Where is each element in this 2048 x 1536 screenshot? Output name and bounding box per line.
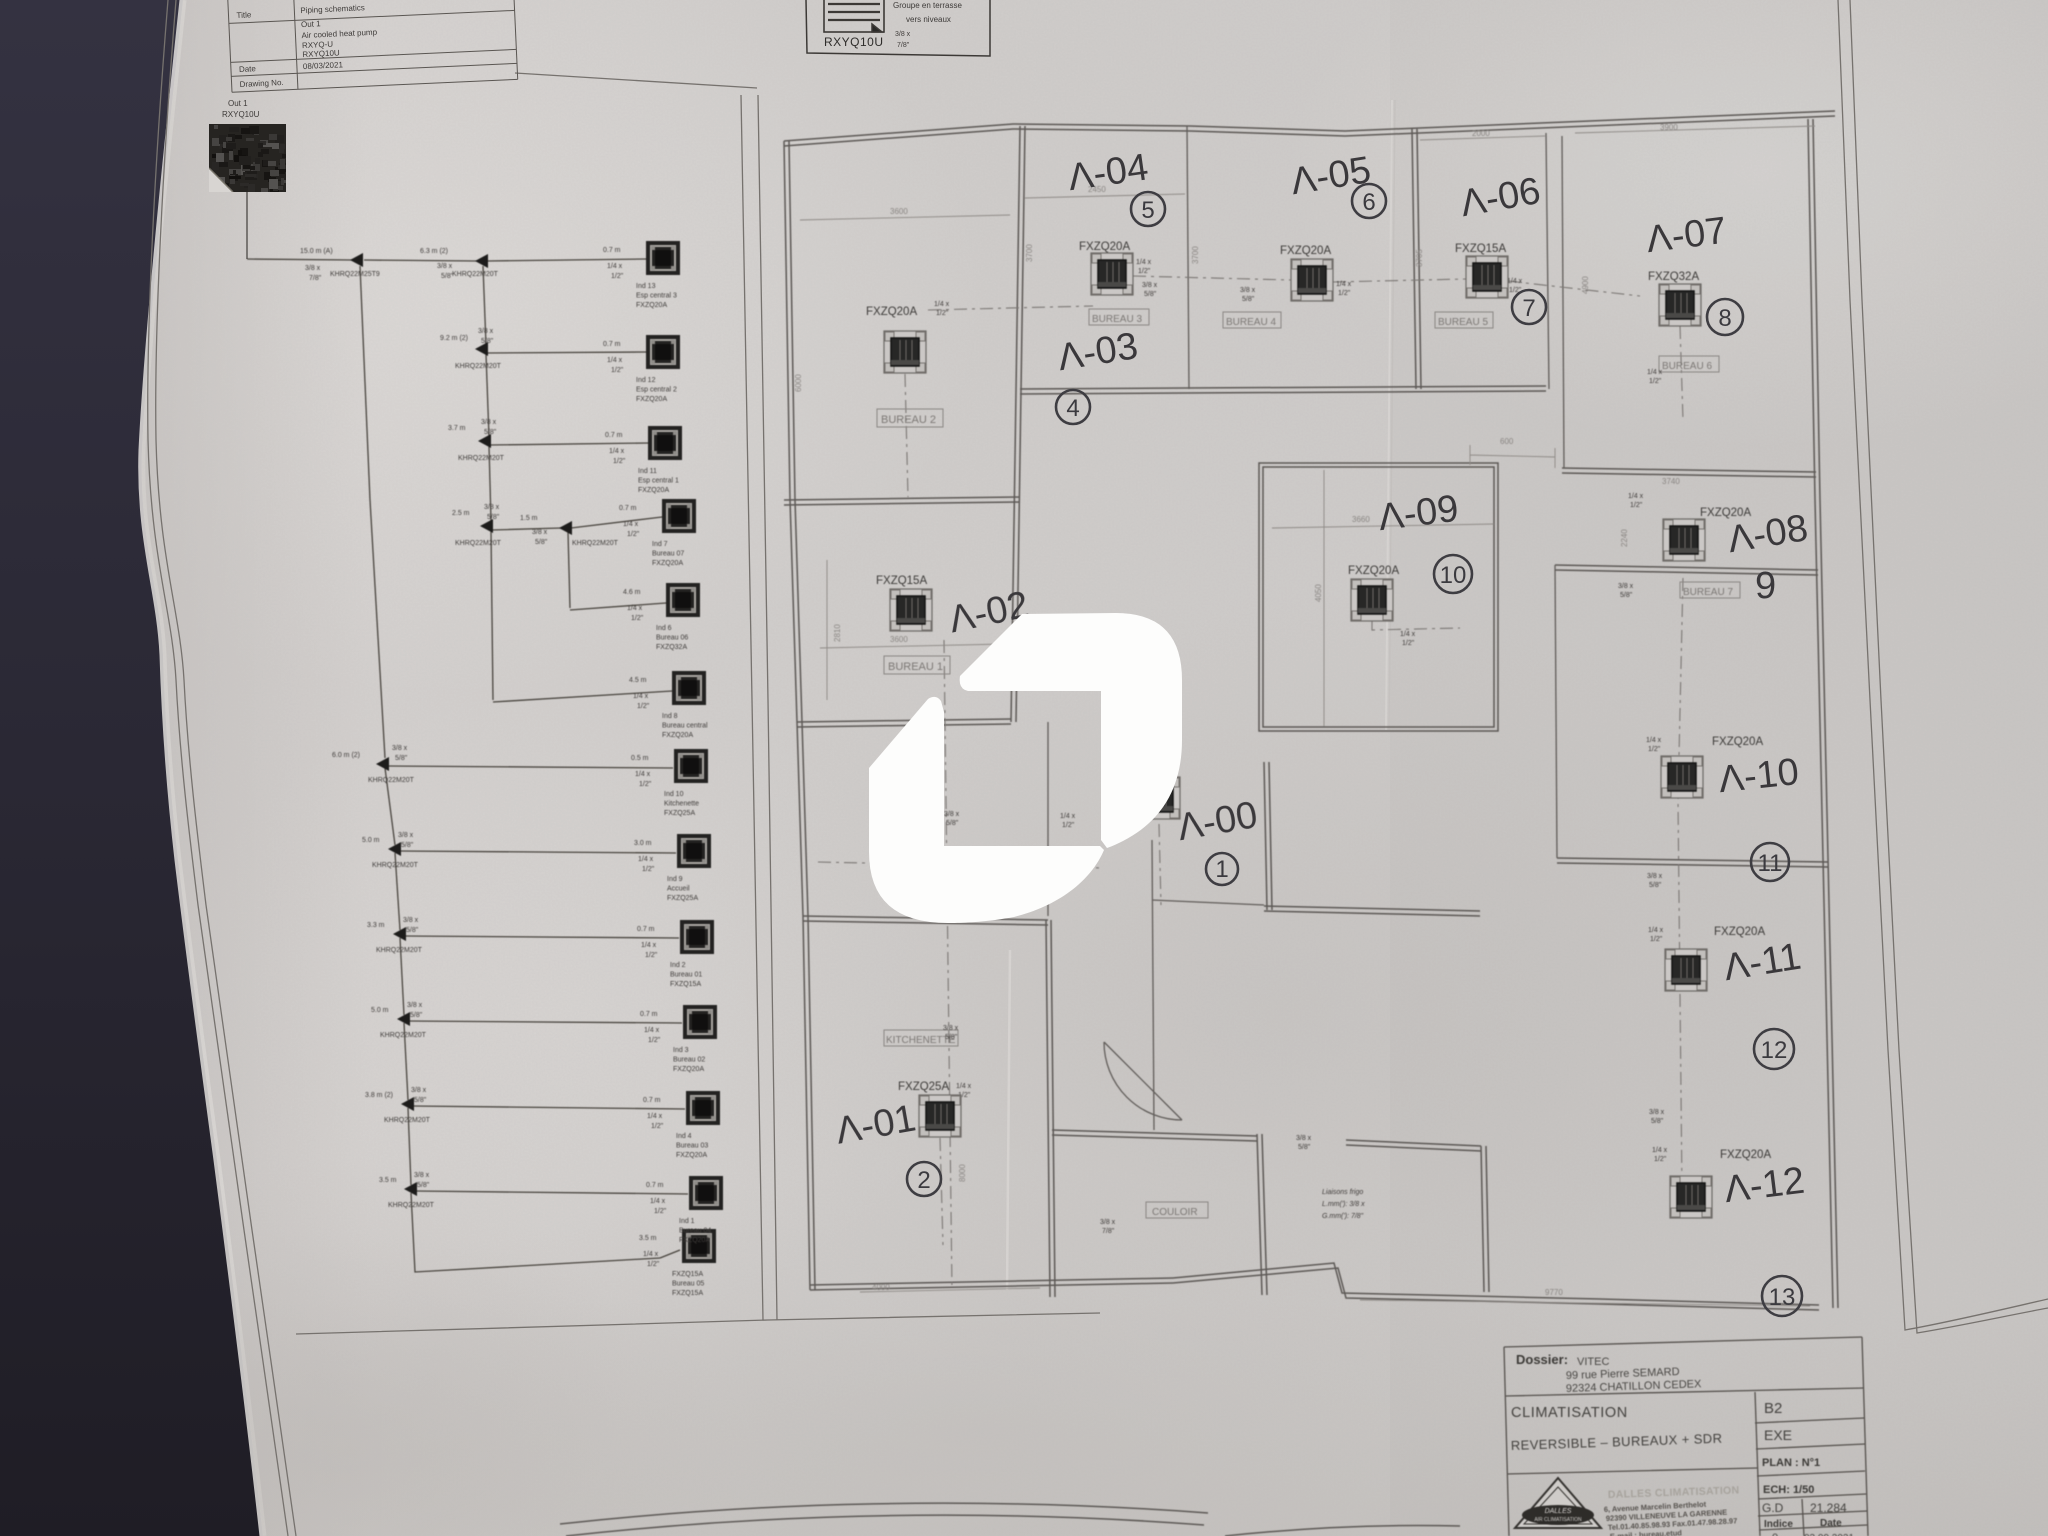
svg-text:4.5 m: 4.5 m [629, 677, 647, 684]
svg-text:AIR CLIMATISATION: AIR CLIMATISATION [1534, 1517, 1582, 1523]
svg-text:5/8": 5/8" [410, 1012, 423, 1019]
svg-text:FXZQ32A: FXZQ32A [656, 644, 687, 651]
svg-text:1/4 x: 1/4 x [650, 1198, 666, 1205]
svg-text:7/8": 7/8" [309, 275, 322, 282]
svg-text:4.6 m: 4.6 m [623, 589, 641, 596]
svg-text:KHRQ22M20T: KHRQ22M20T [388, 1202, 435, 1209]
svg-text:3/8 x: 3/8 x [532, 529, 548, 536]
svg-text:5/8": 5/8" [946, 820, 959, 827]
svg-text:5/8": 5/8" [535, 539, 548, 546]
svg-text:1/4 x: 1/4 x [627, 605, 643, 612]
svg-text:1/2": 1/2" [631, 615, 644, 622]
svg-text:1/2": 1/2" [654, 1208, 667, 1215]
svg-text:FXZQ15A: FXZQ15A [672, 1290, 703, 1297]
svg-text:1/4 x: 1/4 x [644, 1027, 660, 1034]
svg-text:1/4 x: 1/4 x [1647, 369, 1663, 376]
svg-text:KHRQ22M20T: KHRQ22M20T [458, 455, 505, 462]
svg-text:FXZQ20A: FXZQ20A [638, 487, 669, 494]
svg-text:3600: 3600 [890, 635, 908, 644]
svg-text:3/8 x: 3/8 x [481, 419, 497, 426]
svg-text:FXZQ15A: FXZQ15A [672, 1271, 703, 1278]
svg-text:2000: 2000 [1472, 129, 1490, 138]
svg-text:1/2": 1/2" [1654, 1156, 1667, 1163]
svg-text:1/2": 1/2" [647, 1261, 660, 1268]
svg-text:8: 8 [1718, 305, 1731, 332]
svg-text:1/4 x: 1/4 x [623, 521, 639, 528]
svg-text:5/8": 5/8" [487, 514, 500, 521]
svg-text:1/4 x: 1/4 x [934, 301, 950, 308]
svg-text:Bureau 04: Bureau 04 [679, 1228, 711, 1235]
svg-text:1/2": 1/2" [1402, 640, 1415, 647]
svg-text:Ind 6: Ind 6 [656, 625, 672, 632]
svg-text:2.5 m: 2.5 m [452, 510, 470, 517]
svg-text:3.8 m (2): 3.8 m (2) [365, 1092, 393, 1099]
svg-text:5/8": 5/8" [417, 1182, 430, 1189]
svg-text:3/8 x: 3/8 x [1142, 282, 1158, 289]
svg-text:3/8 x: 3/8 x [484, 504, 500, 511]
svg-text:1/4 x: 1/4 x [607, 357, 623, 364]
svg-text:0.7 m: 0.7 m [603, 247, 621, 254]
svg-text:Ind 12: Ind 12 [636, 377, 656, 384]
svg-text:vers niveaux: vers niveaux [906, 15, 951, 24]
svg-text:1/2": 1/2" [637, 703, 650, 710]
svg-text:3/8 x: 3/8 x [478, 328, 494, 335]
svg-text:1/2": 1/2" [648, 1037, 661, 1044]
svg-text:4: 4 [1066, 395, 1079, 422]
svg-text:3740: 3740 [1662, 477, 1680, 486]
svg-text:Ind 10: Ind 10 [664, 791, 684, 798]
svg-text:FXZQ20A: FXZQ20A [662, 732, 693, 739]
svg-text:KHRQ22M20T: KHRQ22M20T [372, 862, 419, 869]
svg-text:1/4 x: 1/4 x [633, 693, 649, 700]
svg-text:3/8 x: 3/8 x [895, 31, 911, 38]
svg-text:3/8 x: 3/8 x [437, 263, 453, 270]
svg-text:1/4 x: 1/4 x [641, 942, 657, 949]
svg-text:RXYQ10U: RXYQ10U [222, 110, 260, 119]
svg-text:KHRQ22M20T: KHRQ22M20T [455, 540, 502, 547]
svg-text:2240: 2240 [1620, 529, 1629, 547]
svg-text:FXZQ32A: FXZQ32A [1648, 271, 1699, 283]
svg-text:9.2 m (2): 9.2 m (2) [440, 335, 468, 342]
svg-text:1/4 x: 1/4 x [638, 856, 654, 863]
svg-text:3/8 x: 3/8 x [1649, 1109, 1665, 1116]
svg-text:KHRQ22M20T: KHRQ22M20T [376, 947, 423, 954]
svg-text:BUREAU 7: BUREAU 7 [1683, 587, 1733, 598]
svg-text:8000: 8000 [958, 1164, 967, 1182]
svg-text:4900: 4900 [1581, 276, 1590, 294]
svg-text:3/8 x: 3/8 x [1296, 1135, 1312, 1142]
svg-text:FXZQ20A: FXZQ20A [676, 1152, 707, 1159]
svg-text:0.7 m: 0.7 m [637, 926, 655, 933]
svg-text:0.7 m: 0.7 m [643, 1097, 661, 1104]
svg-text:0.5 m: 0.5 m [631, 755, 649, 762]
svg-text:BUREAU 6: BUREAU 6 [1662, 361, 1712, 372]
svg-text:3700: 3700 [1025, 244, 1034, 262]
svg-text:1/2": 1/2" [651, 1123, 664, 1130]
svg-text:KHRQ22M20T: KHRQ22M20T [452, 271, 499, 278]
svg-text:BUREAU 3: BUREAU 3 [1092, 314, 1142, 325]
svg-text:FXZQ20A: FXZQ20A [679, 1237, 710, 1244]
svg-text:10: 10 [1440, 562, 1467, 589]
svg-text:3705: 3705 [1415, 249, 1424, 267]
svg-text:08/03/2021: 08/03/2021 [303, 60, 344, 71]
svg-text:Bureau 06: Bureau 06 [656, 635, 688, 642]
svg-text:FXZQ20A: FXZQ20A [636, 396, 667, 403]
svg-text:Λ-10: Λ-10 [1717, 751, 1801, 801]
svg-text:FXZQ20A: FXZQ20A [1348, 565, 1399, 577]
svg-text:3900: 3900 [1660, 123, 1678, 132]
svg-text:FXZQ20A: FXZQ20A [1720, 1149, 1771, 1161]
svg-text:KHRQ22M20T: KHRQ22M20T [455, 363, 502, 370]
svg-text:FXZQ15A: FXZQ15A [876, 575, 927, 587]
svg-text:12: 12 [1761, 1037, 1788, 1064]
svg-text:1/4 x: 1/4 x [643, 1251, 659, 1258]
svg-text:3.0 m: 3.0 m [634, 840, 652, 847]
svg-text:6000: 6000 [794, 374, 803, 392]
svg-text:1/2": 1/2" [611, 273, 624, 280]
svg-text:Date: Date [239, 64, 257, 74]
svg-text:FXZQ20A: FXZQ20A [652, 560, 683, 567]
svg-text:5/8": 5/8" [401, 842, 414, 849]
svg-text:1/2": 1/2" [1138, 268, 1151, 275]
svg-text:1/4 x: 1/4 x [1136, 259, 1152, 266]
svg-text:FXZQ25A: FXZQ25A [667, 895, 698, 902]
svg-text:1/4 x: 1/4 x [956, 1083, 972, 1090]
svg-text:FXZQ15A: FXZQ15A [670, 981, 701, 988]
svg-text:1/2": 1/2" [1649, 378, 1662, 385]
svg-text:7/8": 7/8" [1102, 1228, 1115, 1235]
svg-text:1/2": 1/2" [1650, 936, 1663, 943]
svg-text:KHRQ22M20T: KHRQ22M20T [384, 1117, 431, 1124]
svg-text:5.0 m: 5.0 m [371, 1007, 389, 1014]
svg-text:6.3 m (2): 6.3 m (2) [420, 248, 448, 255]
svg-text:BUREAU 2: BUREAU 2 [881, 414, 936, 426]
svg-text:2: 2 [917, 1167, 930, 1194]
svg-text:1/2": 1/2" [642, 866, 655, 873]
svg-text:FXZQ25A: FXZQ25A [664, 810, 695, 817]
svg-text:Ind 8: Ind 8 [662, 713, 678, 720]
svg-text:1.5 m: 1.5 m [520, 515, 538, 522]
svg-text:Esp central 1: Esp central 1 [638, 478, 679, 485]
svg-text:RXYQ10U: RXYQ10U [302, 48, 340, 59]
svg-text:1/4 x: 1/4 x [1336, 281, 1352, 288]
svg-text:4000: 4000 [872, 1283, 890, 1292]
svg-text:1/4 x: 1/4 x [1646, 737, 1662, 744]
svg-text:FXZQ15A: FXZQ15A [1455, 243, 1506, 255]
svg-text:3/8 x: 3/8 x [414, 1172, 430, 1179]
svg-text:Bureau 07: Bureau 07 [652, 551, 684, 558]
svg-text:1/4 x: 1/4 x [1400, 631, 1416, 638]
svg-text:1/4 x: 1/4 x [635, 771, 651, 778]
svg-text:Accueil: Accueil [667, 886, 690, 893]
svg-text:1/2": 1/2" [627, 531, 640, 538]
svg-text:5/8": 5/8" [1298, 1144, 1311, 1151]
svg-text:5/8": 5/8" [1651, 1118, 1664, 1125]
svg-text:Esp central 3: Esp central 3 [636, 293, 677, 300]
svg-text:3/8 x: 3/8 x [1647, 873, 1663, 880]
svg-text:1/4 x: 1/4 x [647, 1113, 663, 1120]
svg-text:BUREAU 4: BUREAU 4 [1226, 317, 1276, 328]
svg-text:5/8": 5/8" [484, 429, 497, 436]
svg-text:3/8 x: 3/8 x [398, 832, 414, 839]
svg-text:4050: 4050 [1314, 584, 1323, 602]
svg-text:1/2": 1/2" [613, 458, 626, 465]
svg-text:B2: B2 [1764, 1400, 1782, 1417]
svg-text:Kitchenette: Kitchenette [664, 801, 699, 808]
svg-text:BUREAU 1: BUREAU 1 [888, 661, 943, 673]
svg-text:9770: 9770 [1545, 1288, 1563, 1297]
svg-text:RXYQ10U: RXYQ10U [824, 35, 884, 49]
svg-text:3/8 x: 3/8 x [943, 1025, 959, 1032]
svg-text:9: 9 [1755, 565, 1776, 607]
svg-text:5/8": 5/8" [1620, 592, 1633, 599]
svg-text:5/8": 5/8" [395, 755, 408, 762]
svg-text:Indice: Indice [1764, 1519, 1793, 1530]
svg-text:0.7 m: 0.7 m [619, 505, 637, 512]
svg-text:3/8 x: 3/8 x [407, 1002, 423, 1009]
svg-text:VITEC: VITEC [1577, 1356, 1609, 1368]
svg-text:7/8": 7/8" [897, 42, 910, 49]
svg-text:3600: 3600 [890, 207, 908, 216]
svg-text:3660: 3660 [1352, 515, 1370, 524]
svg-text:ECH: 1/50: ECH: 1/50 [1763, 1484, 1814, 1496]
svg-text:3/8 x: 3/8 x [411, 1087, 427, 1094]
svg-text:FXZQ20A: FXZQ20A [636, 302, 667, 309]
svg-text:3/8 x: 3/8 x [944, 811, 960, 818]
svg-text:Liaisons frigo: Liaisons frigo [1322, 1189, 1363, 1196]
svg-text:KHRQ22M25T9: KHRQ22M25T9 [330, 271, 380, 278]
svg-text:1/2": 1/2" [936, 310, 949, 317]
svg-text:5/8": 5/8" [414, 1097, 427, 1104]
svg-text:KHRQ22M20T: KHRQ22M20T [380, 1032, 427, 1039]
svg-text:FXZQ20A: FXZQ20A [1280, 245, 1331, 257]
svg-text:3/8 x: 3/8 x [305, 265, 321, 272]
svg-text:Date: Date [1820, 1518, 1842, 1529]
svg-text:Bureau 03: Bureau 03 [676, 1143, 708, 1150]
svg-text:Ind 11: Ind 11 [638, 468, 657, 475]
svg-text:Out 1: Out 1 [301, 19, 322, 29]
svg-text:Out 1: Out 1 [228, 99, 248, 108]
svg-text:0: 0 [1772, 1532, 1778, 1536]
svg-text:FXZQ20A: FXZQ20A [1079, 241, 1130, 253]
svg-text:0.7 m: 0.7 m [603, 341, 621, 348]
svg-text:1/4 x: 1/4 x [1648, 927, 1664, 934]
svg-text:Esp central 2: Esp central 2 [636, 387, 677, 394]
svg-text:600: 600 [1500, 437, 1514, 446]
svg-text:Ind 7: Ind 7 [652, 541, 668, 548]
svg-text:FXZQ20A: FXZQ20A [1714, 926, 1765, 938]
svg-text:Bureau 02: Bureau 02 [673, 1057, 705, 1064]
svg-text:Bureau central: Bureau central [662, 723, 708, 730]
svg-text:3/8 x: 3/8 x [403, 917, 419, 924]
svg-text:BUREAU 5: BUREAU 5 [1438, 317, 1488, 328]
svg-text:DALLES: DALLES [1545, 1508, 1572, 1515]
svg-text:Ind 3: Ind 3 [673, 1047, 689, 1054]
svg-text:3/8 x: 3/8 x [1100, 1219, 1116, 1226]
svg-text:G.mm('): 7/8": G.mm('): 7/8" [1322, 1213, 1364, 1220]
svg-text:3.5 m: 3.5 m [639, 1235, 657, 1242]
svg-text:1/4 x: 1/4 x [1652, 1147, 1668, 1154]
svg-text:1/4 x: 1/4 x [609, 448, 625, 455]
svg-text:5/8": 5/8" [406, 927, 419, 934]
svg-text:7: 7 [1522, 295, 1535, 322]
svg-text:5/8": 5/8" [1649, 882, 1662, 889]
svg-text:5/8": 5/8" [1242, 296, 1255, 303]
svg-text:13: 13 [1769, 1284, 1796, 1311]
svg-text:FXZQ25A: FXZQ25A [898, 1081, 949, 1093]
svg-text:Ind 13: Ind 13 [636, 283, 656, 290]
svg-text:1/4 x: 1/4 x [1628, 493, 1644, 500]
svg-text:5.0 m: 5.0 m [362, 837, 380, 844]
svg-text:1/4 x: 1/4 x [1507, 278, 1523, 285]
svg-text:5: 5 [1141, 197, 1154, 224]
svg-text:3/8 x: 3/8 x [1618, 583, 1634, 590]
svg-text:G.D: G.D [1762, 1501, 1784, 1515]
svg-text:Ind 4: Ind 4 [676, 1133, 692, 1140]
svg-text:Bureau 05: Bureau 05 [672, 1281, 704, 1288]
svg-text:1/2": 1/2" [645, 952, 658, 959]
svg-text:0.7 m: 0.7 m [646, 1182, 664, 1189]
svg-text:5/8": 5/8" [1144, 291, 1157, 298]
svg-text:21.284: 21.284 [1810, 1501, 1847, 1515]
svg-text:L.mm('): 3/8 x: L.mm('): 3/8 x [1322, 1201, 1365, 1208]
svg-text:1: 1 [1215, 856, 1228, 883]
svg-text:3/8 x: 3/8 x [392, 745, 408, 752]
svg-text:KHRQ22M20T: KHRQ22M20T [572, 540, 619, 547]
svg-text:6.0 m (2): 6.0 m (2) [332, 752, 360, 759]
svg-text:1/2": 1/2" [1338, 290, 1351, 297]
svg-text:Dossier:: Dossier: [1516, 1352, 1568, 1367]
svg-text:15.0 m (A): 15.0 m (A) [300, 248, 333, 255]
svg-text:CLIMATISATION: CLIMATISATION [1511, 1405, 1628, 1421]
svg-text:1/2": 1/2" [639, 781, 652, 788]
svg-text:3/8 x: 3/8 x [1240, 287, 1256, 294]
svg-text:3700: 3700 [1191, 246, 1200, 264]
svg-text:Title: Title [236, 10, 252, 20]
svg-text:1/2": 1/2" [1062, 822, 1075, 829]
svg-text:0.7 m: 0.7 m [640, 1011, 658, 1018]
svg-text:EXE: EXE [1764, 1427, 1792, 1443]
svg-text:Ind 1: Ind 1 [679, 1218, 695, 1225]
svg-text:1/2": 1/2" [1648, 746, 1661, 753]
svg-text:3.7 m: 3.7 m [448, 425, 466, 432]
svg-text:FXZQ20A: FXZQ20A [673, 1066, 704, 1073]
svg-text:FXZQ20A: FXZQ20A [1712, 736, 1763, 748]
svg-text:5/8": 5/8" [945, 1034, 958, 1041]
svg-text:1/4 x: 1/4 x [607, 263, 623, 270]
svg-text:6: 6 [1362, 189, 1375, 216]
svg-text:Ind 9: Ind 9 [667, 876, 683, 883]
svg-text:11: 11 [1758, 850, 1783, 877]
svg-text:FXZQ20A: FXZQ20A [866, 306, 917, 318]
svg-text:0.7 m: 0.7 m [605, 432, 623, 439]
svg-text:3.3 m: 3.3 m [367, 922, 385, 929]
svg-text:1/2": 1/2" [611, 367, 624, 374]
svg-text:1/4 x: 1/4 x [1060, 813, 1076, 820]
svg-text:2810: 2810 [833, 624, 842, 642]
svg-text:1/2": 1/2" [1630, 502, 1643, 509]
svg-text:PLAN : N°1: PLAN : N°1 [1762, 1457, 1820, 1469]
svg-text:Ind 2: Ind 2 [670, 962, 686, 969]
svg-text:Bureau 01: Bureau 01 [670, 972, 702, 979]
svg-text:Groupe en terrasse: Groupe en terrasse [893, 1, 962, 10]
svg-text:KHRQ22M20T: KHRQ22M20T [368, 777, 415, 784]
svg-text:3.5 m: 3.5 m [379, 1177, 397, 1184]
svg-text:COULOIR: COULOIR [1152, 1207, 1198, 1218]
svg-text:5/8": 5/8" [481, 338, 494, 345]
